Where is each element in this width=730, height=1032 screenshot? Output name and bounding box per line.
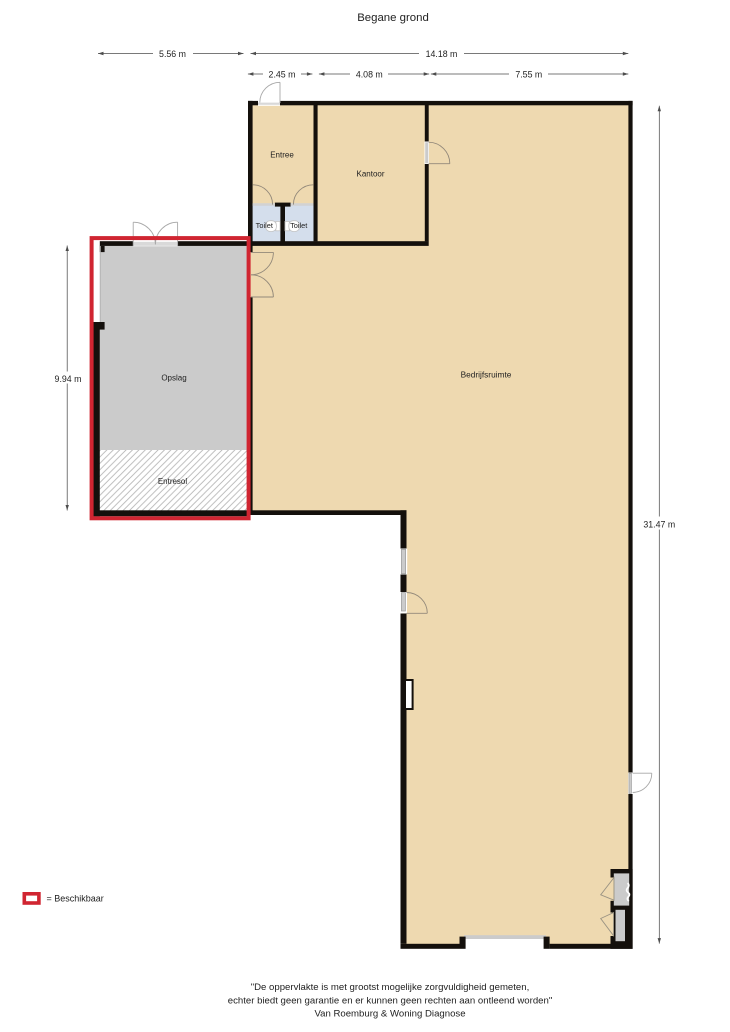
svg-text:Bedrijfsruimte: Bedrijfsruimte [461, 370, 512, 380]
svg-text:Toilet: Toilet [290, 221, 307, 230]
svg-text:31.47 m: 31.47 m [643, 520, 675, 530]
svg-text:Toilet: Toilet [256, 221, 273, 230]
svg-text:= Beschikbaar: = Beschikbaar [47, 894, 104, 904]
svg-text:5.56 m: 5.56 m [159, 49, 186, 59]
svg-text:Van Roemburg & Woning Diagnose: Van Roemburg & Woning Diagnose [314, 1009, 465, 1020]
svg-text:Entresol: Entresol [158, 477, 188, 486]
svg-text:Entree: Entree [270, 151, 294, 160]
svg-text:4.08 m: 4.08 m [356, 69, 383, 79]
svg-text:7.55 m: 7.55 m [515, 69, 542, 79]
svg-text:Begane grond: Begane grond [357, 12, 429, 24]
svg-text:14.18 m: 14.18 m [426, 49, 458, 59]
svg-text:echter biedt geen garantie en: echter biedt geen garantie en er kunnen … [228, 995, 553, 1006]
svg-text:Opslag: Opslag [161, 374, 186, 383]
svg-text:9.94 m: 9.94 m [55, 374, 82, 384]
svg-text:2.45 m: 2.45 m [269, 69, 296, 79]
svg-text:Kantoor: Kantoor [356, 170, 384, 179]
svg-text:"De oppervlakte is met grootst: "De oppervlakte is met grootst mogelijke… [251, 982, 530, 993]
